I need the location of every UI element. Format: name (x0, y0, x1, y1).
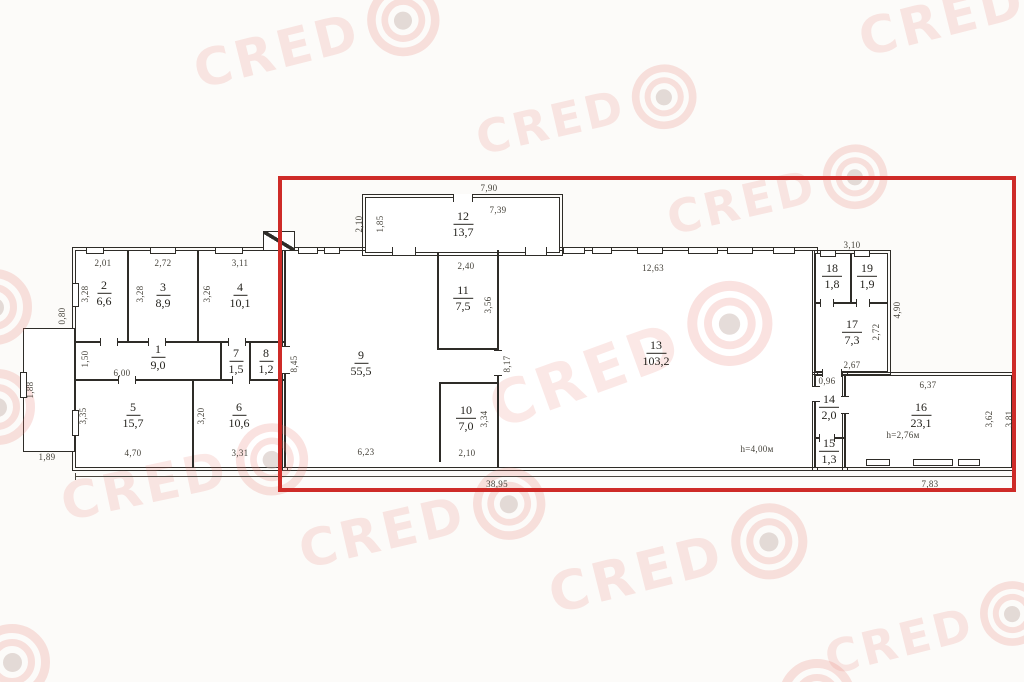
room-number: 4 (233, 281, 247, 296)
dimension-label: 3,20 (196, 408, 206, 425)
room-area: 15,7 (123, 416, 144, 430)
bullseye-icon (0, 369, 35, 445)
bullseye-center-dot (758, 530, 781, 553)
bullseye-icon (0, 269, 32, 345)
bullseye-middle-ring (0, 384, 20, 430)
wall-segment (192, 379, 194, 468)
dimension-label: 3,31 (232, 448, 249, 458)
dimension-label: 2,72 (155, 258, 172, 268)
watermark-text: CRED (854, 0, 1024, 65)
bullseye-icon (779, 659, 855, 682)
room-number: 7 (229, 347, 243, 362)
bullseye-middle-ring (641, 73, 688, 120)
dimension-label: 4,70 (125, 448, 142, 458)
watermark-text: CRED (543, 527, 730, 623)
watermark: CRED (851, 0, 1024, 75)
room-area: 9,0 (151, 358, 166, 372)
watermark-text: CRED (57, 444, 234, 530)
room-number: 8 (259, 347, 273, 362)
room-area: 1,5 (229, 362, 244, 376)
watermark-text: CRED (472, 83, 631, 162)
watermark (0, 624, 50, 682)
room-number: 3 (156, 281, 170, 296)
watermark (0, 269, 32, 345)
room-label: 515,7 (123, 399, 144, 429)
dimension-label: 1,88 (25, 382, 35, 399)
watermark-text: CRED (294, 489, 471, 577)
bullseye-middle-ring (0, 284, 17, 330)
bullseye-center-dot (1003, 604, 1023, 624)
room-number: 6 (232, 401, 246, 416)
door-opening (232, 376, 250, 384)
room-label: 410,1 (230, 279, 251, 309)
dimension-label: 2,01 (95, 258, 112, 268)
wall-segment (75, 473, 76, 480)
bullseye-icon (625, 58, 702, 135)
wall-segment (75, 379, 285, 381)
room-number: 5 (126, 401, 140, 416)
room-label: 19,0 (151, 341, 166, 371)
bullseye-center-dot (0, 398, 7, 417)
window-symbol (215, 247, 243, 254)
bullseye-center-dot (0, 298, 4, 317)
bullseye-icon (973, 574, 1024, 652)
bullseye-middle-ring (741, 513, 797, 569)
room-area: 10,6 (229, 416, 250, 430)
room-label: 26,6 (97, 277, 112, 307)
dimension-label: 1,50 (80, 351, 90, 368)
watermark: CRED (818, 574, 1024, 682)
window-symbol (86, 247, 104, 254)
watermark-text: CRED (820, 601, 979, 682)
dimension-label: 3,28 (80, 286, 90, 303)
bullseye-icon (360, 0, 448, 64)
watermark: CRED (186, 0, 447, 107)
window-symbol (72, 283, 79, 307)
dimension-label: 0,80 (57, 308, 67, 325)
dimension-label: 6,00 (114, 368, 131, 378)
wall-segment (249, 341, 251, 379)
wall-segment (127, 250, 129, 341)
bullseye-middle-ring (989, 590, 1024, 637)
wall-segment (220, 341, 222, 379)
room-area: 8,9 (156, 296, 171, 310)
dimension-label: 3,28 (135, 286, 145, 303)
room-label: 38,9 (156, 279, 171, 309)
room-label: 71,5 (229, 345, 244, 375)
dimension-label: 1,89 (39, 452, 56, 462)
room-label: 81,2 (259, 345, 274, 375)
bullseye-middle-ring (377, 0, 430, 47)
bullseye-center-dot (392, 9, 414, 31)
watermark: CRED (470, 58, 703, 171)
dimension-label: 3,11 (232, 258, 249, 268)
bullseye-middle-ring (794, 674, 840, 682)
watermark: CRED (541, 495, 815, 633)
room-number: 2 (97, 279, 111, 294)
room-number: 1 (151, 343, 165, 358)
room-label: 610,6 (229, 399, 250, 429)
window-symbol (150, 247, 176, 254)
bullseye-center-dot (3, 653, 22, 672)
room-area: 6,6 (97, 294, 112, 308)
bullseye-center-dot (654, 87, 673, 106)
bullseye-icon (723, 495, 815, 587)
watermark: CRED (54, 417, 314, 540)
room-area: 1,2 (259, 362, 274, 376)
door-opening (100, 338, 118, 346)
watermark-text: CRED (189, 6, 366, 97)
floorplan-scan: 19,026,638,9410,1515,7610,671,581,2955,5… (0, 0, 1024, 682)
watermark (779, 659, 855, 682)
bullseye-icon (0, 624, 50, 682)
bullseye-middle-ring (0, 639, 35, 682)
room-area: 10,1 (230, 296, 251, 310)
highlight-rectangle (278, 176, 1016, 492)
wall-segment (197, 250, 199, 341)
dimension-label: 3,26 (202, 286, 212, 303)
bullseye-center-dot (498, 493, 520, 515)
watermark (0, 369, 35, 445)
dimension-label: 3,35 (78, 408, 88, 425)
